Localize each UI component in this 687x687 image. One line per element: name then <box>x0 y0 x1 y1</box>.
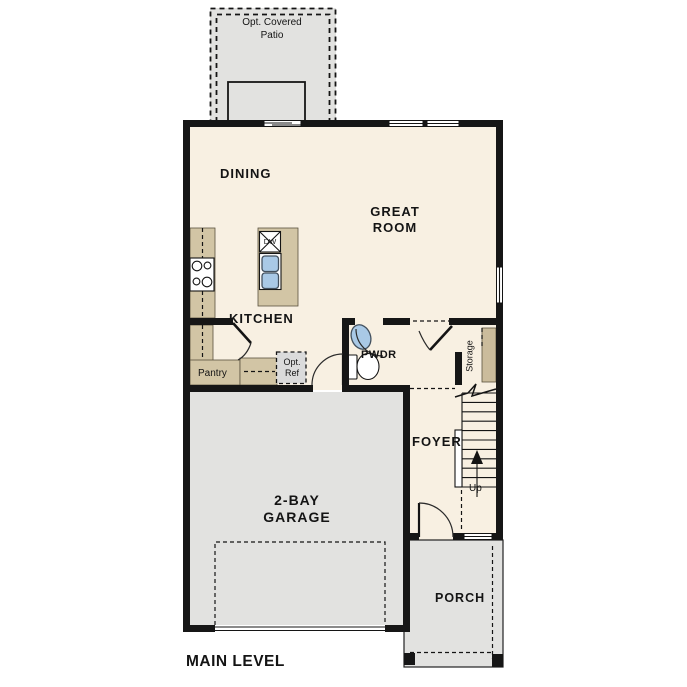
up-label: Up <box>469 483 482 494</box>
garage-door <box>215 625 385 632</box>
patio-sliding-door <box>264 121 301 127</box>
burner <box>192 261 202 271</box>
stove-icon <box>190 258 214 291</box>
foyer-floor <box>403 390 496 540</box>
floor-plan: Opt. Covered Patio DINING GREAT ROOM KIT… <box>0 0 687 687</box>
wall-foyer-bottom-c <box>492 533 503 540</box>
wall-pantry-top <box>183 318 233 325</box>
burner <box>193 278 200 285</box>
wall-top-b <box>301 120 389 127</box>
main-level-title: MAIN LEVEL <box>186 653 285 671</box>
wall-storage-left <box>455 352 462 385</box>
wall-storage-top <box>449 318 503 325</box>
foyer-label: FOYER <box>412 434 462 449</box>
pwdr-label: PWDR <box>361 349 397 361</box>
wall-garage-bottom-a <box>183 625 215 632</box>
great-room-window-1 <box>389 121 423 127</box>
kitchen-sink-icon <box>260 254 282 290</box>
patio-label: Opt. Covered Patio <box>230 17 314 42</box>
burner <box>202 277 212 287</box>
wall-top-c <box>423 120 427 127</box>
porch-post-right <box>492 654 503 667</box>
wall-garage-top-a <box>183 385 313 392</box>
porch-label: PORCH <box>435 591 485 605</box>
wall-garage-bottom-b <box>385 625 410 632</box>
wall-right <box>496 120 503 540</box>
foyer-window <box>464 534 492 540</box>
wall-top-a <box>183 120 264 127</box>
great-room-side-window <box>497 267 503 303</box>
great-room-window-2 <box>427 121 459 127</box>
storage-shelf <box>482 328 496 382</box>
floor-plan-drawing <box>0 0 687 687</box>
storage-label: Storage <box>465 340 476 372</box>
garage-label: 2-BAY GARAGE <box>242 492 352 526</box>
dining-label: DINING <box>220 166 272 181</box>
dishwasher-label: DW <box>264 237 277 246</box>
wall-left <box>183 120 190 632</box>
sink-bowl-top <box>262 256 279 272</box>
wall-pwdr-top-b <box>383 318 410 325</box>
wall-garage-top-b <box>343 385 410 392</box>
opt-ref-label: Opt. Ref <box>279 357 305 379</box>
wall-foyer-bottom-b <box>453 533 464 540</box>
great-room-label: GREAT ROOM <box>360 204 430 235</box>
wall-garage-right <box>403 385 410 632</box>
kitchen-label: KITCHEN <box>229 311 294 326</box>
patio-step <box>228 82 305 122</box>
pantry-label: Pantry <box>198 368 227 379</box>
porch-post-left <box>404 653 415 665</box>
sink-bowl-bottom <box>262 273 279 289</box>
burner <box>204 262 211 269</box>
wall-foyer-bottom-a <box>403 533 419 540</box>
